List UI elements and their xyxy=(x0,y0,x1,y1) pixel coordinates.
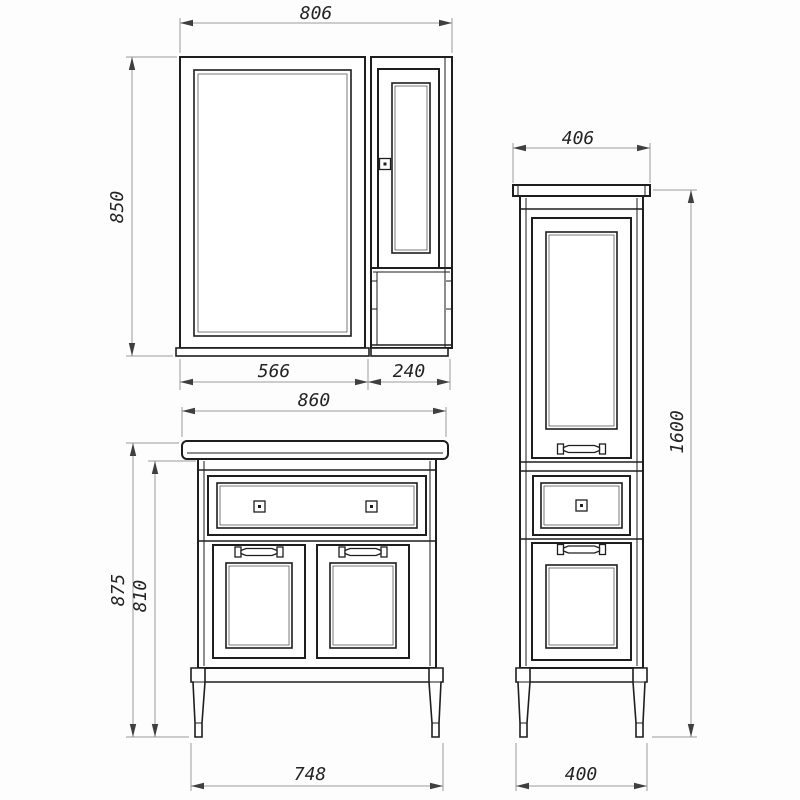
tall-cabinet-top xyxy=(513,185,650,196)
dim-label-860: 860 xyxy=(298,390,331,411)
vanity-left-door xyxy=(213,545,305,658)
vanity-leg-right xyxy=(429,668,443,737)
dim-vanity-width: 860 xyxy=(182,390,446,437)
dim-tall-width: 406 xyxy=(513,128,650,183)
drawer-knob-left xyxy=(254,501,265,512)
dim-label-850: 850 xyxy=(107,191,128,224)
technical-drawing: 806 850 566 240 xyxy=(0,0,800,800)
vanity-legs xyxy=(191,668,443,737)
mirror-side-cabinet xyxy=(371,57,452,356)
vanity-countertop xyxy=(182,441,448,459)
dim-vanity-base-width: 748 xyxy=(191,743,443,791)
mirror-frame xyxy=(194,70,351,336)
tall-upper-door xyxy=(532,218,631,458)
drawer-front xyxy=(217,483,417,528)
dim-label-240: 240 xyxy=(393,361,426,382)
vanity-right-door xyxy=(317,545,409,658)
dim-label-406: 406 xyxy=(562,128,595,149)
side-cabinet-base xyxy=(371,348,448,356)
side-door-panel xyxy=(392,83,430,253)
side-door-knob xyxy=(380,159,391,170)
dim-label-875: 875 xyxy=(108,574,129,607)
dim-vanity-heights: 875 810 xyxy=(108,443,196,737)
arrow-left xyxy=(180,20,193,26)
dim-tall-base-width: 400 xyxy=(516,743,647,791)
dim-mirror-height: 850 xyxy=(107,57,177,356)
dim-label-400: 400 xyxy=(565,764,598,785)
dim-label-806: 806 xyxy=(300,3,333,24)
vanity-drawer xyxy=(208,476,426,535)
dim-mirror-total-width: 806 xyxy=(180,3,452,53)
vanity-leg-left xyxy=(191,668,205,737)
dim-label-810: 810 xyxy=(130,580,151,613)
arrow-down xyxy=(129,343,135,356)
tall-cabinet-legs xyxy=(516,668,647,737)
tall-drawer-knob xyxy=(576,500,587,511)
dim-label-566: 566 xyxy=(258,361,291,382)
drawing-sheet: 806 850 566 240 xyxy=(0,0,800,800)
arrow-right xyxy=(439,20,452,26)
tall-cabinet xyxy=(513,185,650,737)
dim-label-748: 748 xyxy=(294,764,327,785)
mirror-cabinet xyxy=(176,57,452,356)
vanity-cabinet xyxy=(182,441,448,737)
dim-mirror-sections: 566 240 xyxy=(180,359,450,390)
tall-leg-right xyxy=(633,668,647,737)
tall-leg-left xyxy=(516,668,530,737)
dim-tall-height: 1600 xyxy=(652,190,697,737)
mirror-cabinet-base xyxy=(176,348,369,356)
arrow-up xyxy=(129,57,135,70)
tall-lower-door xyxy=(532,543,631,660)
dim-label-1600: 1600 xyxy=(667,410,688,453)
tall-drawer xyxy=(533,476,630,535)
drawer-knob-right xyxy=(366,501,377,512)
